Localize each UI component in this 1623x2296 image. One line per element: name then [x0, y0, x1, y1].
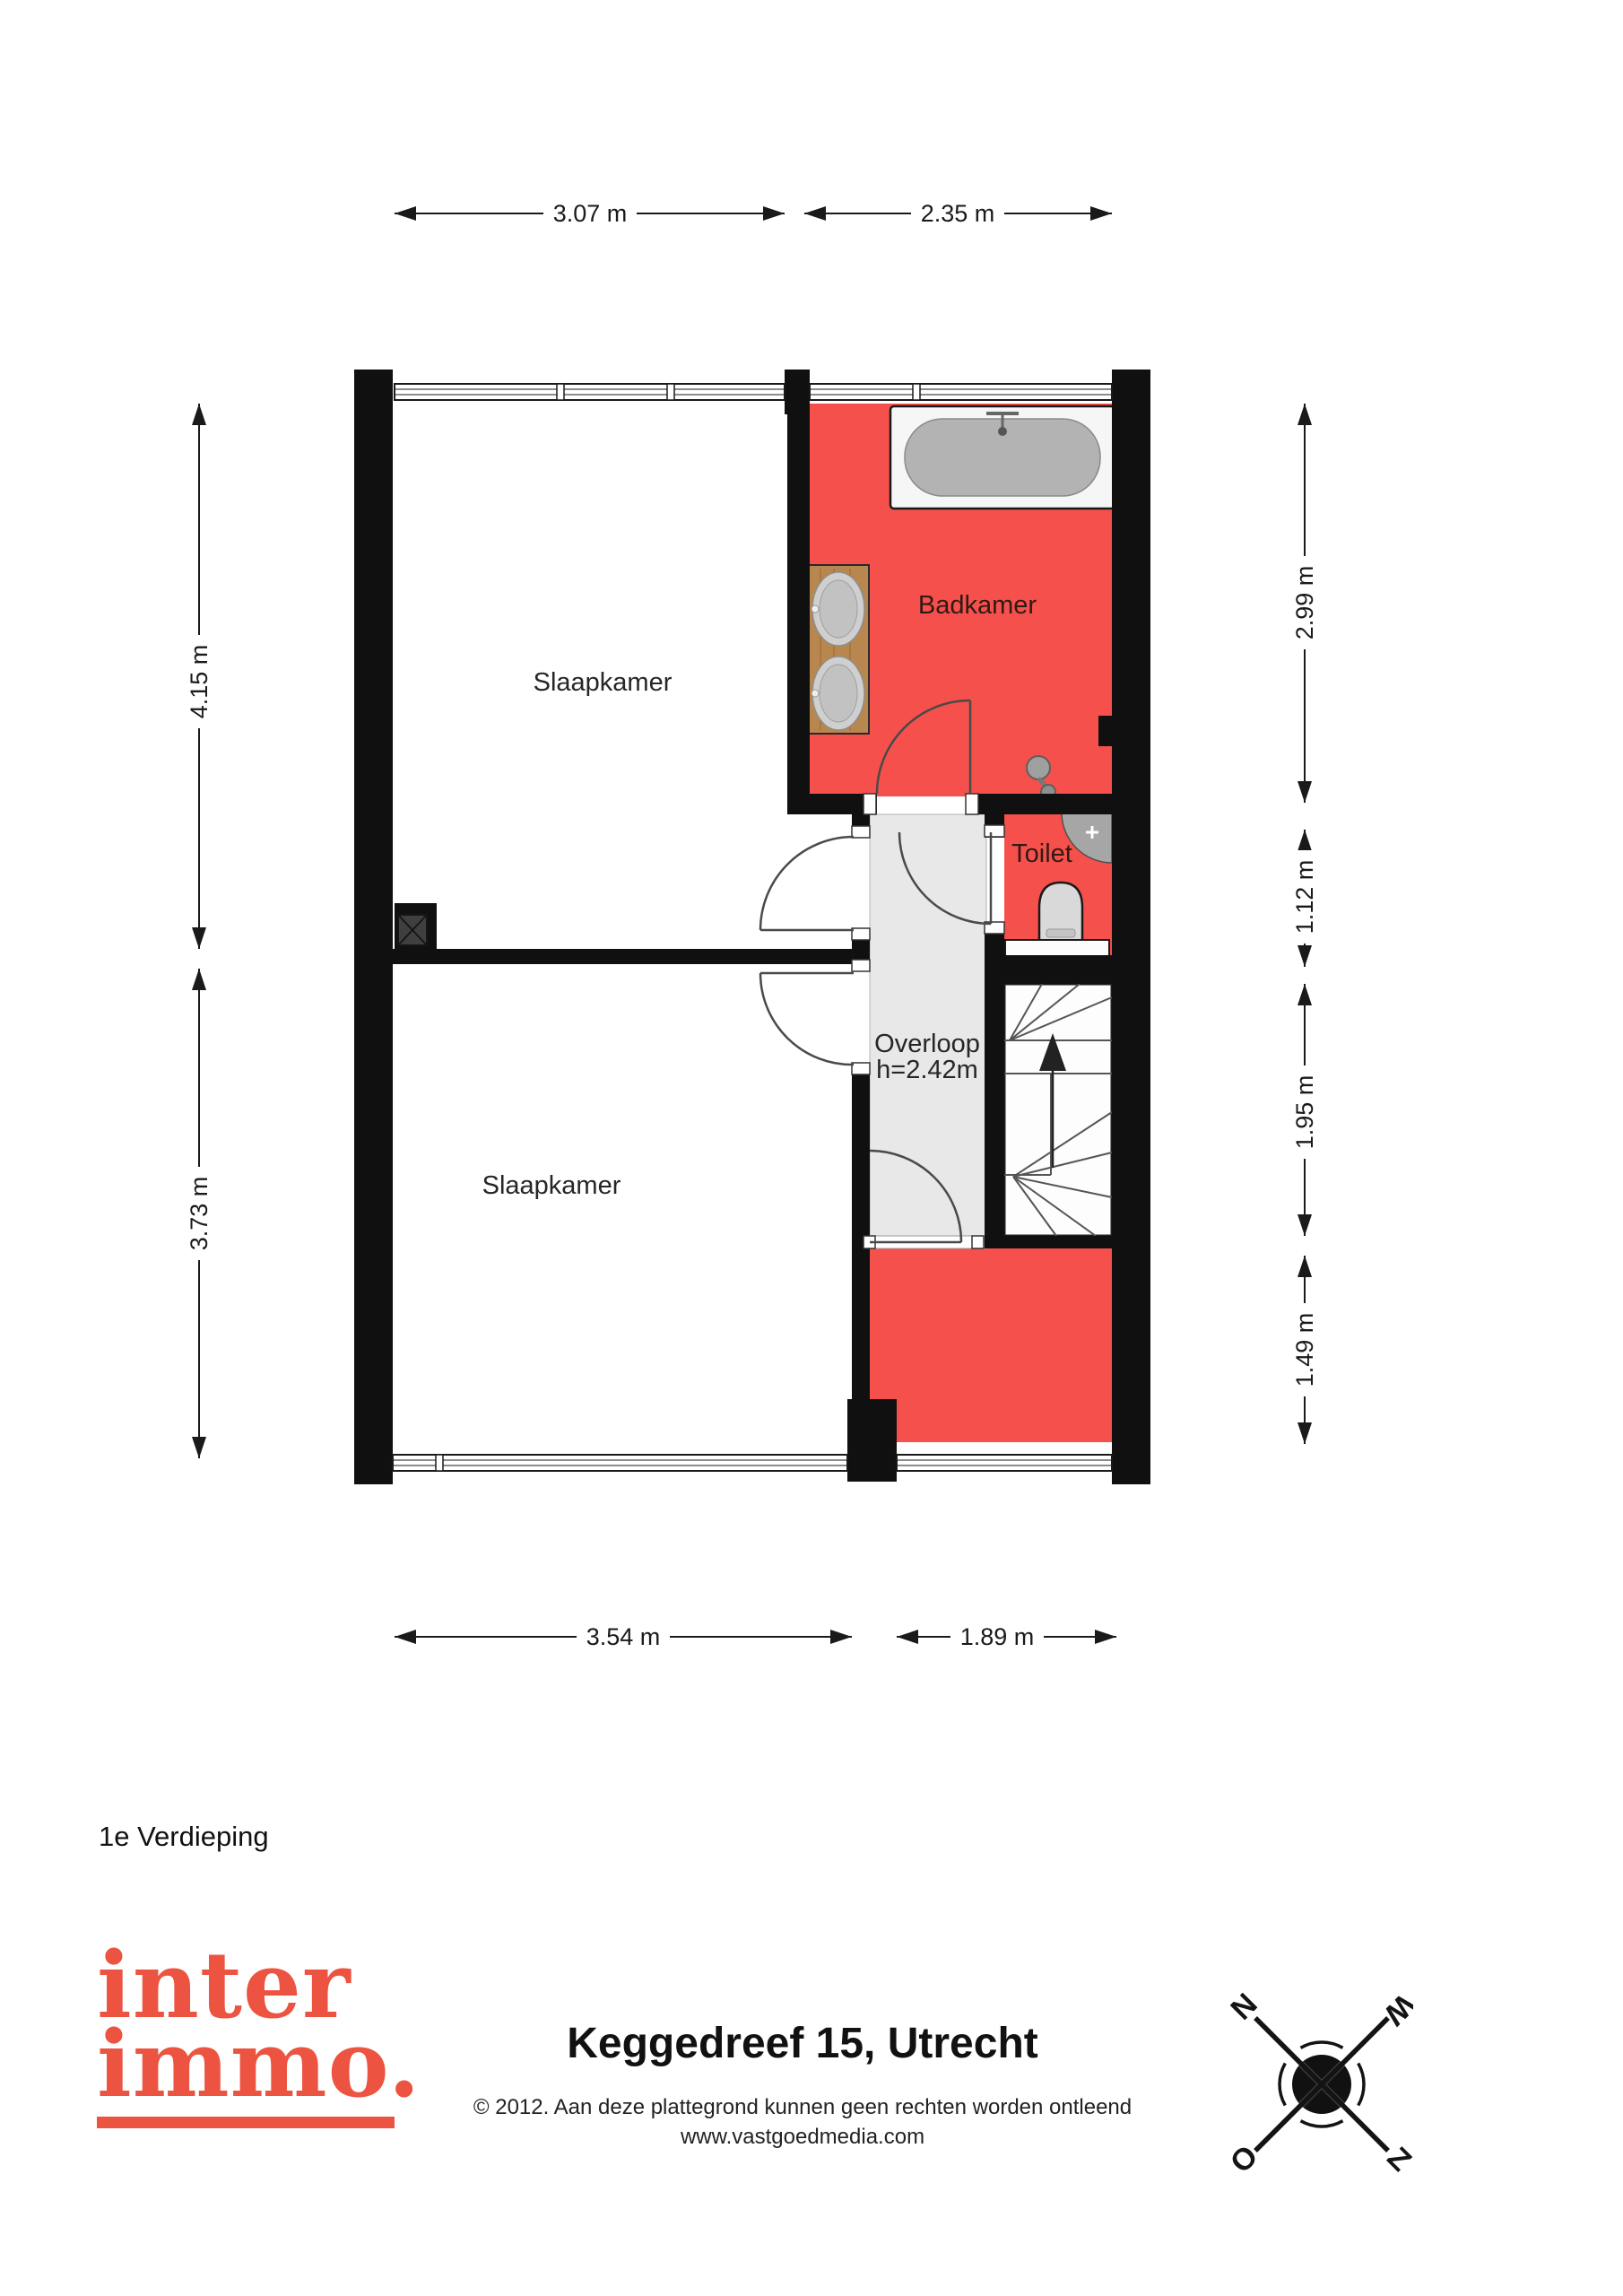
vanity-double-sink: [808, 565, 869, 734]
dimension-bottom-2: 1.89 m: [897, 1622, 1116, 1651]
website-url: www.vastgoedmedia.com: [395, 2125, 1211, 2150]
svg-text:1.12 m: 1.12 m: [1291, 860, 1318, 935]
room-label-landing-height: h=2.42m: [876, 1056, 978, 1084]
dimension-bottom-1: 3.54 m: [395, 1622, 852, 1651]
dimension-right-3: 1.95 m: [1290, 984, 1319, 1236]
page-title: Keggedreef 15, Utrecht: [395, 2016, 1211, 2072]
dimension-left-1: 4.15 m: [185, 404, 213, 949]
title-block: Keggedreef 15, Utrecht © 2012. Aan deze …: [395, 2016, 1211, 2150]
room-label-toilet: Toilet: [1011, 839, 1072, 868]
bathtub: [890, 406, 1115, 509]
room-label-bedroom-top: Slaapkamer: [534, 668, 673, 697]
dimension-right-1: 2.99 m: [1290, 404, 1319, 803]
dimension-right-4: 1.49 m: [1290, 1256, 1319, 1444]
svg-text:2.99 m: 2.99 m: [1291, 566, 1318, 640]
compass-rose-icon: N W O Z: [1230, 1993, 1413, 2176]
door-bedroom-bottom: [760, 973, 854, 1065]
chimney-block: [398, 915, 427, 945]
page: Slaapkamer Slaapkamer Badkamer Toilet Ov…: [0, 0, 1623, 2296]
room-label-bathroom: Badkamer: [918, 591, 1037, 620]
room-label-bedroom-bottom: Slaapkamer: [482, 1171, 621, 1200]
svg-text:1.49 m: 1.49 m: [1291, 1313, 1318, 1387]
dimension-top-1: 3.07 m: [395, 199, 785, 228]
dimension-right-2: 1.12 m: [1290, 830, 1319, 967]
floor-plan: Slaapkamer Slaapkamer Badkamer Toilet Ov…: [161, 161, 1354, 1686]
svg-text:2.35 m: 2.35 m: [921, 200, 995, 227]
svg-text:3.07 m: 3.07 m: [553, 200, 628, 227]
hall-floor: [870, 1248, 1112, 1442]
svg-text:1.89 m: 1.89 m: [960, 1623, 1035, 1650]
dimension-top-2: 2.35 m: [804, 199, 1112, 228]
window-top-bathroom: [810, 384, 1112, 400]
floor-label: 1e Verdieping: [99, 1821, 269, 1853]
door-bedroom-top: [760, 837, 854, 930]
interimmo-logo: inter immo.: [97, 1946, 421, 2128]
svg-text:3.73 m: 3.73 m: [186, 1177, 213, 1251]
copyright-text: © 2012. Aan deze plattegrond kunnen geen…: [395, 2095, 1211, 2120]
svg-text:4.15 m: 4.15 m: [186, 645, 213, 719]
svg-text:3.54 m: 3.54 m: [586, 1623, 661, 1650]
window-bottom-bedroom: [393, 1455, 847, 1471]
stairs: [1004, 984, 1112, 1236]
room-label-landing: Overloop: [874, 1030, 980, 1058]
svg-text:1.95 m: 1.95 m: [1291, 1075, 1318, 1150]
window-top-bedroom: [395, 384, 785, 400]
window-bottom-hall: [897, 1455, 1112, 1471]
logo-line-2: immo.: [97, 2025, 421, 2104]
dimension-left-2: 3.73 m: [185, 969, 213, 1458]
